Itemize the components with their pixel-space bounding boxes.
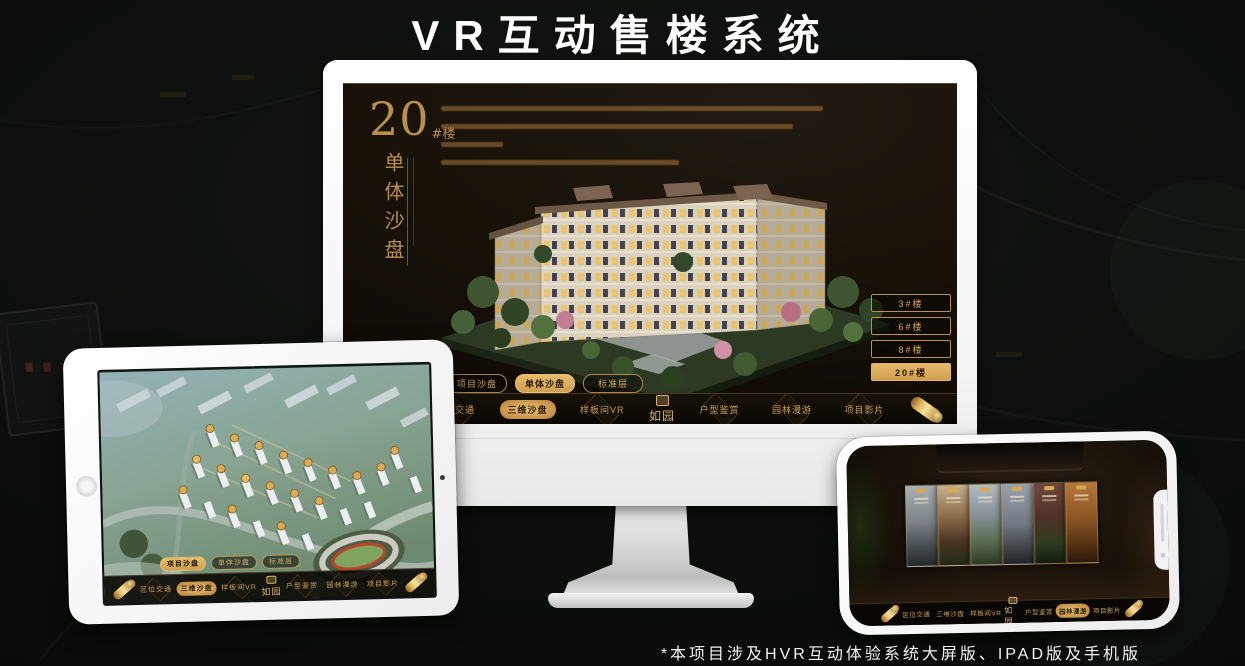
pano-panel[interactable] bbox=[1065, 481, 1099, 564]
scroll-menu-icon[interactable] bbox=[112, 579, 136, 602]
seal-icon bbox=[1008, 597, 1017, 604]
scroll-menu-icon[interactable] bbox=[908, 394, 943, 424]
tab-label: 标准层 bbox=[598, 379, 628, 389]
nav-item-label: 园林漫游 bbox=[1059, 608, 1087, 616]
panel-seal-icon bbox=[916, 489, 926, 493]
building-number: 20 bbox=[369, 96, 430, 142]
floor-tabs: 项目沙盘 单体沙盘 标准层 bbox=[447, 374, 643, 393]
nav-item-label: 区位交通 bbox=[902, 612, 930, 620]
building-button-label: 3#楼 bbox=[898, 297, 923, 310]
tab-standard-floor[interactable]: 标准层 bbox=[583, 374, 643, 393]
brand-logo[interactable]: 如园 bbox=[1004, 597, 1022, 627]
building-button-label: 8#楼 bbox=[898, 343, 923, 356]
nav-item-label: 样板间VR bbox=[580, 405, 625, 415]
building-selector: 3#楼 6#楼 8#楼 20#楼 bbox=[871, 294, 951, 381]
stage: VR互动售楼系统 20 #楼 单体沙盘 bbox=[0, 0, 1245, 666]
nav-item-project-film[interactable]: 项目影片 bbox=[1090, 603, 1124, 618]
tab-label: 标准层 bbox=[269, 558, 293, 566]
phone-speaker-icon bbox=[1160, 504, 1164, 542]
building-button-20[interactable]: 20#楼 bbox=[871, 363, 951, 381]
nav-item-label: 三维沙盘 bbox=[181, 585, 213, 593]
description-line bbox=[441, 106, 823, 111]
panel-caption bbox=[1074, 494, 1088, 496]
phone-frame: 区位交通 三维沙盘 样板间VR 如园 户型鉴赏 园林漫游 项目影片 bbox=[836, 430, 1180, 635]
nav-item-unit-plans[interactable]: 户型鉴赏 bbox=[1022, 604, 1056, 619]
nav-item-showroom-vr[interactable]: 样板间VR bbox=[217, 580, 261, 595]
pano-panel[interactable] bbox=[969, 483, 1003, 566]
tab-label: 单体沙盘 bbox=[218, 559, 250, 567]
nav-item-3d-sandtable[interactable]: 三维沙盘 bbox=[933, 606, 967, 621]
brand-logo[interactable]: 如园 bbox=[649, 395, 675, 424]
nav-item-garden-tour[interactable]: 园林漫游 bbox=[322, 577, 362, 592]
building-button-label: 20#楼 bbox=[895, 366, 927, 379]
seal-icon bbox=[656, 395, 669, 406]
panel-seal-icon bbox=[980, 487, 990, 491]
nav-item-label: 户型鉴赏 bbox=[286, 582, 318, 590]
tab-project-sandtable[interactable]: 项目沙盘 bbox=[160, 556, 206, 571]
panel-caption bbox=[946, 497, 960, 499]
nav-item-label: 项目影片 bbox=[367, 580, 399, 588]
building-button-3[interactable]: 3#楼 bbox=[871, 294, 951, 312]
nav-item-label: 样板间VR bbox=[970, 610, 1001, 618]
building-button-label: 6#楼 bbox=[898, 320, 923, 333]
panel-seal-icon bbox=[1076, 485, 1086, 489]
nav-item-label: 户型鉴赏 bbox=[1025, 609, 1053, 617]
phone-screen: 区位交通 三维沙盘 样板间VR 如园 户型鉴赏 园林漫游 项目影片 bbox=[846, 440, 1170, 627]
panel-seal-icon bbox=[1044, 486, 1054, 490]
tab-standard-floor[interactable]: 标准层 bbox=[262, 554, 300, 569]
ipad-camera-icon bbox=[440, 475, 445, 480]
building-model-image[interactable] bbox=[423, 142, 903, 412]
nav-item-label: 项目影片 bbox=[1093, 608, 1121, 616]
brand-logo-text: 如园 bbox=[1004, 605, 1022, 627]
nav-item-garden-tour[interactable]: 园林漫游 bbox=[1056, 603, 1090, 618]
heading-subtitle-vertical: 单体沙盘 bbox=[379, 152, 408, 268]
pano-panel[interactable] bbox=[1033, 482, 1067, 565]
nav-item-3d-sandtable[interactable]: 三维沙盘 bbox=[500, 400, 556, 419]
nav-item-location[interactable]: 区位交通 bbox=[136, 582, 176, 597]
description-line bbox=[441, 124, 793, 129]
nav-item-3d-sandtable[interactable]: 三维沙盘 bbox=[176, 581, 216, 596]
page-title: VR互动售楼系统 bbox=[0, 2, 1245, 63]
building-button-8[interactable]: 8#楼 bbox=[871, 340, 951, 358]
panel-caption bbox=[978, 496, 992, 498]
heading-divider-thin bbox=[413, 158, 414, 246]
nav-item-showroom-vr[interactable]: 样板间VR bbox=[967, 605, 1004, 620]
nav-item-label: 户型鉴赏 bbox=[700, 405, 740, 415]
phone-camera-icon bbox=[1160, 553, 1165, 558]
scroll-menu-icon[interactable] bbox=[1124, 600, 1144, 619]
panel-seal-icon bbox=[1012, 487, 1022, 491]
pano-panel[interactable] bbox=[1001, 482, 1035, 565]
brand-logo[interactable]: 如园 bbox=[261, 575, 282, 597]
nav-item-unit-plans[interactable]: 户型鉴赏 bbox=[282, 578, 322, 593]
pano-panel[interactable] bbox=[905, 484, 939, 567]
tab-label: 项目沙盘 bbox=[167, 561, 199, 569]
nav-item-garden-tour[interactable]: 园林漫游 bbox=[764, 400, 820, 419]
ipad-home-button[interactable] bbox=[76, 476, 98, 498]
nav-item-label: 园林漫游 bbox=[326, 581, 358, 589]
nav-item-location[interactable]: 区位交通 bbox=[899, 607, 933, 622]
brand-logo-text: 如园 bbox=[261, 584, 281, 597]
panel-caption bbox=[1010, 496, 1024, 498]
pano-ceiling bbox=[936, 441, 1084, 473]
brand-logo-text: 如园 bbox=[649, 407, 675, 424]
nav-item-label: 项目影片 bbox=[845, 405, 885, 415]
tab-label: 单体沙盘 bbox=[525, 379, 565, 389]
nav-item-unit-plans[interactable]: 户型鉴赏 bbox=[692, 400, 748, 419]
panel-caption bbox=[914, 498, 928, 500]
seal-icon bbox=[266, 575, 276, 583]
tab-single-sandtable[interactable]: 单体沙盘 bbox=[515, 374, 575, 393]
nav-item-showroom-vr[interactable]: 样板间VR bbox=[572, 400, 633, 419]
nav-item-label: 样板间VR bbox=[221, 584, 257, 592]
footnote: *本项目涉及HVR互动体验系统大屏版、IPAD版及手机版 bbox=[661, 640, 1141, 664]
monitor-base bbox=[548, 593, 754, 608]
panel-seal-icon bbox=[948, 488, 958, 492]
ipad-frame: 项目沙盘 单体沙盘 标准层 区位交通 三维沙盘 样板间VR 如园 户型鉴赏 园林… bbox=[63, 339, 460, 624]
phone-notch bbox=[1153, 490, 1170, 570]
nav-item-label: 三维沙盘 bbox=[508, 405, 548, 415]
nav-item-label: 三维沙盘 bbox=[936, 611, 964, 619]
nav-item-project-film[interactable]: 项目影片 bbox=[363, 576, 403, 591]
panel-caption bbox=[1042, 495, 1056, 497]
heading-divider bbox=[407, 158, 408, 266]
nav-item-project-film[interactable]: 项目影片 bbox=[837, 400, 893, 419]
scroll-menu-icon[interactable] bbox=[879, 605, 899, 624]
tab-project-sandtable[interactable]: 项目沙盘 bbox=[447, 374, 507, 393]
building-button-6[interactable]: 6#楼 bbox=[871, 317, 951, 335]
nav-item-label: 园林漫游 bbox=[772, 405, 812, 415]
scroll-menu-icon[interactable] bbox=[404, 571, 428, 594]
ipad-screen: 项目沙盘 单体沙盘 标准层 区位交通 三维沙盘 样板间VR 如园 户型鉴赏 园林… bbox=[97, 362, 437, 606]
nav-item-label: 区位交通 bbox=[140, 586, 172, 594]
tab-label: 项目沙盘 bbox=[457, 379, 497, 389]
tab-single-sandtable[interactable]: 单体沙盘 bbox=[211, 555, 257, 570]
pano-panel[interactable] bbox=[937, 484, 971, 567]
